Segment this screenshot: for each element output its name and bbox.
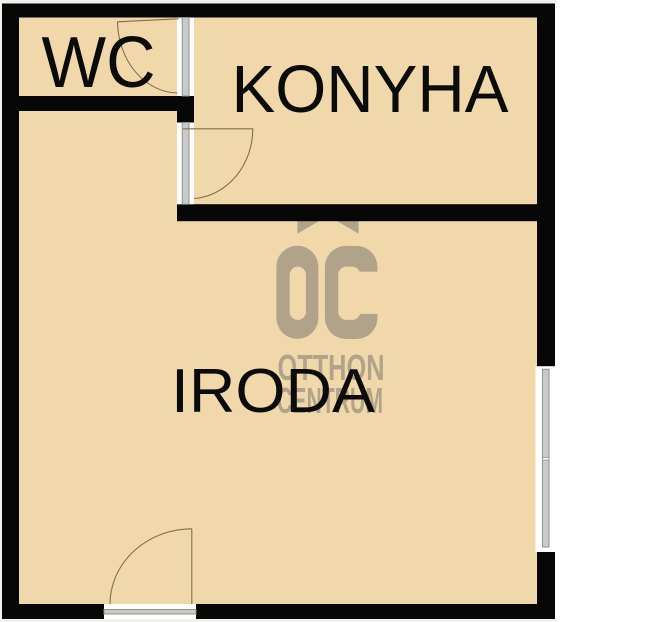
svg-text:IRODA: IRODA [171,357,376,426]
svg-text:KONYHA: KONYHA [232,52,509,127]
svg-text:WC: WC [42,23,156,103]
